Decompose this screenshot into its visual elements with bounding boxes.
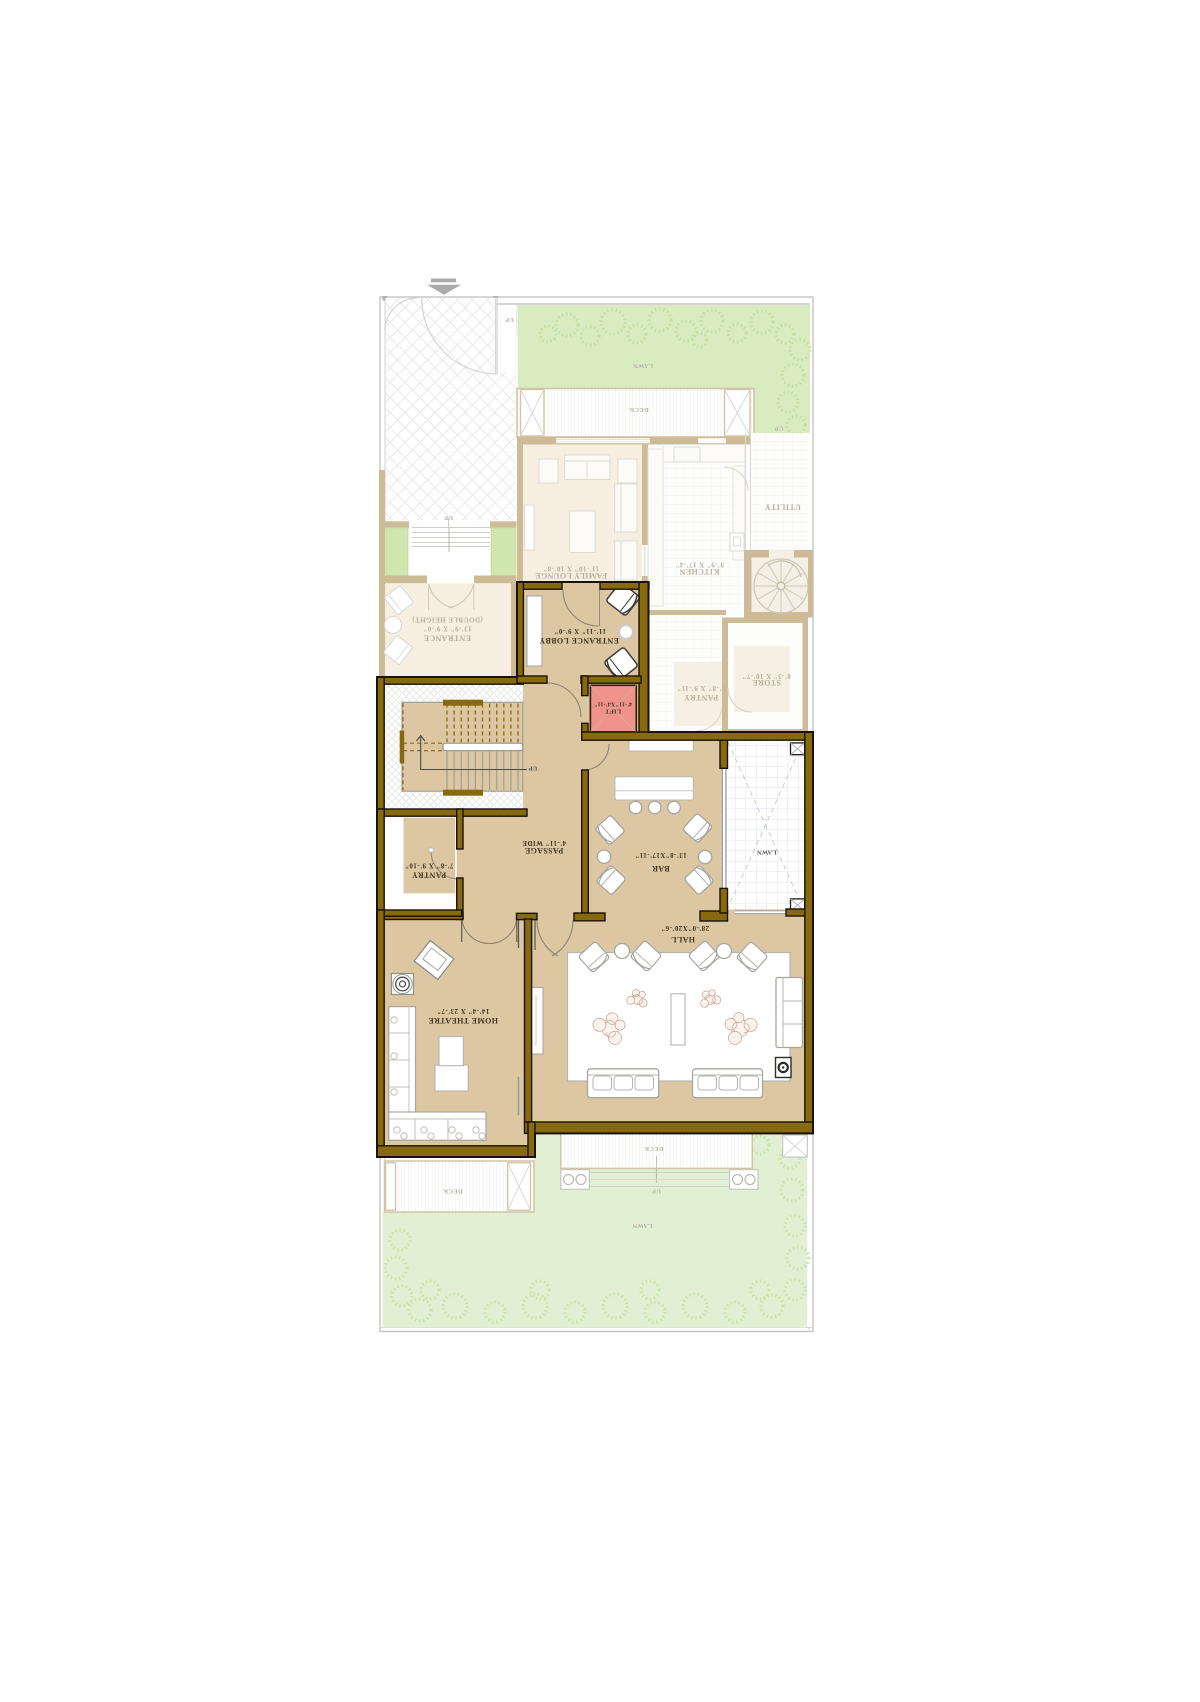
svg-text:UP: UP [505,316,514,323]
svg-text:UP: UP [774,425,783,432]
svg-text:14'-4" X 23'-7": 14'-4" X 23'-7" [437,1007,490,1014]
svg-text:13'-9" X 9'-0": 13'-9" X 9'-0" [423,625,472,632]
svg-text:9'-9" X 17'-4": 9'-9" X 17'-4" [675,561,724,568]
svg-text:HALL: HALL [671,935,695,944]
svg-text:(DOUBLE HEIGHT): (DOUBLE HEIGHT) [412,616,483,623]
svg-text:11'-10" X 18'-8": 11'-10" X 18'-8" [543,565,599,572]
svg-text:4'-11" WIDE: 4'-11" WIDE [522,839,566,846]
svg-text:HOME THEATRE: HOME THEATRE [428,1016,498,1025]
svg-text:28'-0"X20'-6": 28'-0"X20'-6" [661,924,709,931]
svg-text:DECK: DECK [644,1145,664,1152]
svg-text:LAWN: LAWN [632,1222,653,1229]
svg-text:11'-11" X 9'-0": 11'-11" X 9'-0" [554,627,606,634]
svg-text:13'-8"X17'-11": 13'-8"X17'-11" [635,851,687,858]
svg-text:LAWN: LAWN [757,849,777,856]
svg-text:ENTRANCE: ENTRANCE [423,634,471,643]
svg-text:UP: UP [652,1188,661,1195]
svg-text:DECK: DECK [443,1188,463,1195]
svg-text:DECK: DECK [629,406,649,413]
svg-text:LIFT: LIFT [605,708,622,715]
svg-text:PANTRY: PANTRY [684,693,719,702]
svg-text:LAWN: LAWN [633,362,654,369]
svg-text:7'-8" X 9'-11": 7'-8" X 9'-11" [677,684,725,691]
svg-text:BAR: BAR [652,864,670,873]
svg-text:PANTRY: PANTRY [412,871,447,880]
svg-text:8'-3" X 10'-7": 8'-3" X 10'-7" [742,672,791,679]
svg-text:PASSAGE: PASSAGE [525,846,564,855]
svg-text:4'-11"X4'-11": 4'-11"X4'-11" [594,701,632,707]
svg-text:UP: UP [529,765,538,772]
svg-text:7'-8" X 9'-10": 7'-8" X 9'-10" [405,862,454,869]
svg-text:UTILITY: UTILITY [765,503,801,512]
svg-text:ENTRANCE LOBBY: ENTRANCE LOBBY [539,636,619,645]
